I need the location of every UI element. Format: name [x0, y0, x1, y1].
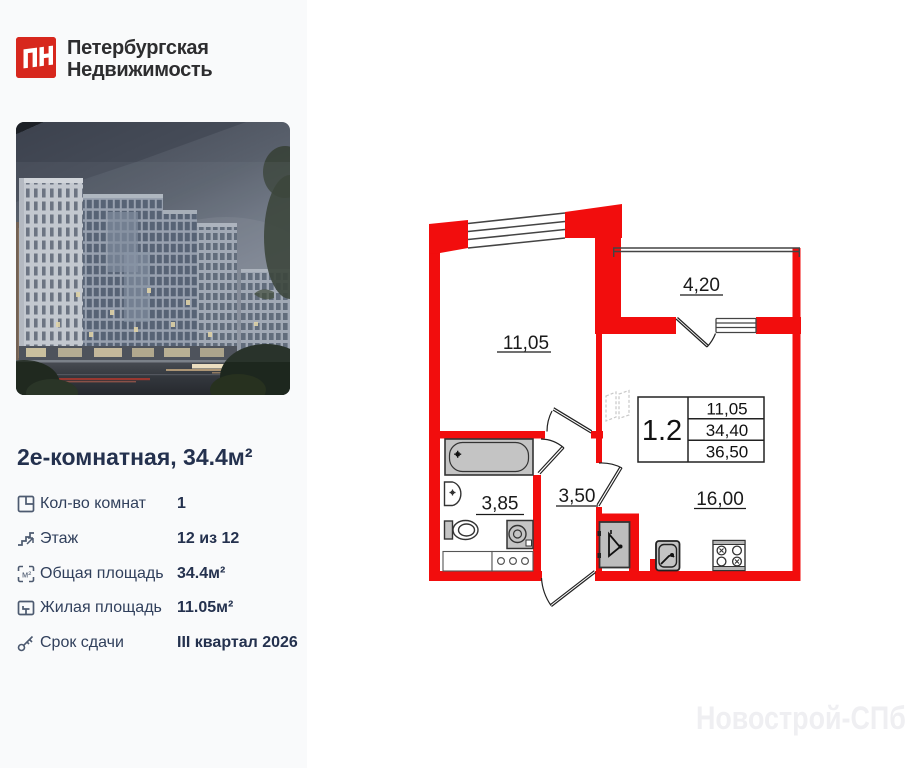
svg-text:4,20: 4,20 [683, 275, 720, 296]
svg-text:3,85: 3,85 [482, 494, 519, 515]
svg-text:11,05: 11,05 [503, 333, 549, 354]
svg-text:16,00: 16,00 [696, 489, 744, 510]
svg-text:36,50: 36,50 [706, 443, 749, 462]
svg-text:11,05: 11,05 [706, 400, 747, 419]
svg-text:1.2: 1.2 [642, 415, 682, 447]
svg-text:34,40: 34,40 [706, 421, 749, 440]
svg-text:3,50: 3,50 [559, 486, 596, 507]
